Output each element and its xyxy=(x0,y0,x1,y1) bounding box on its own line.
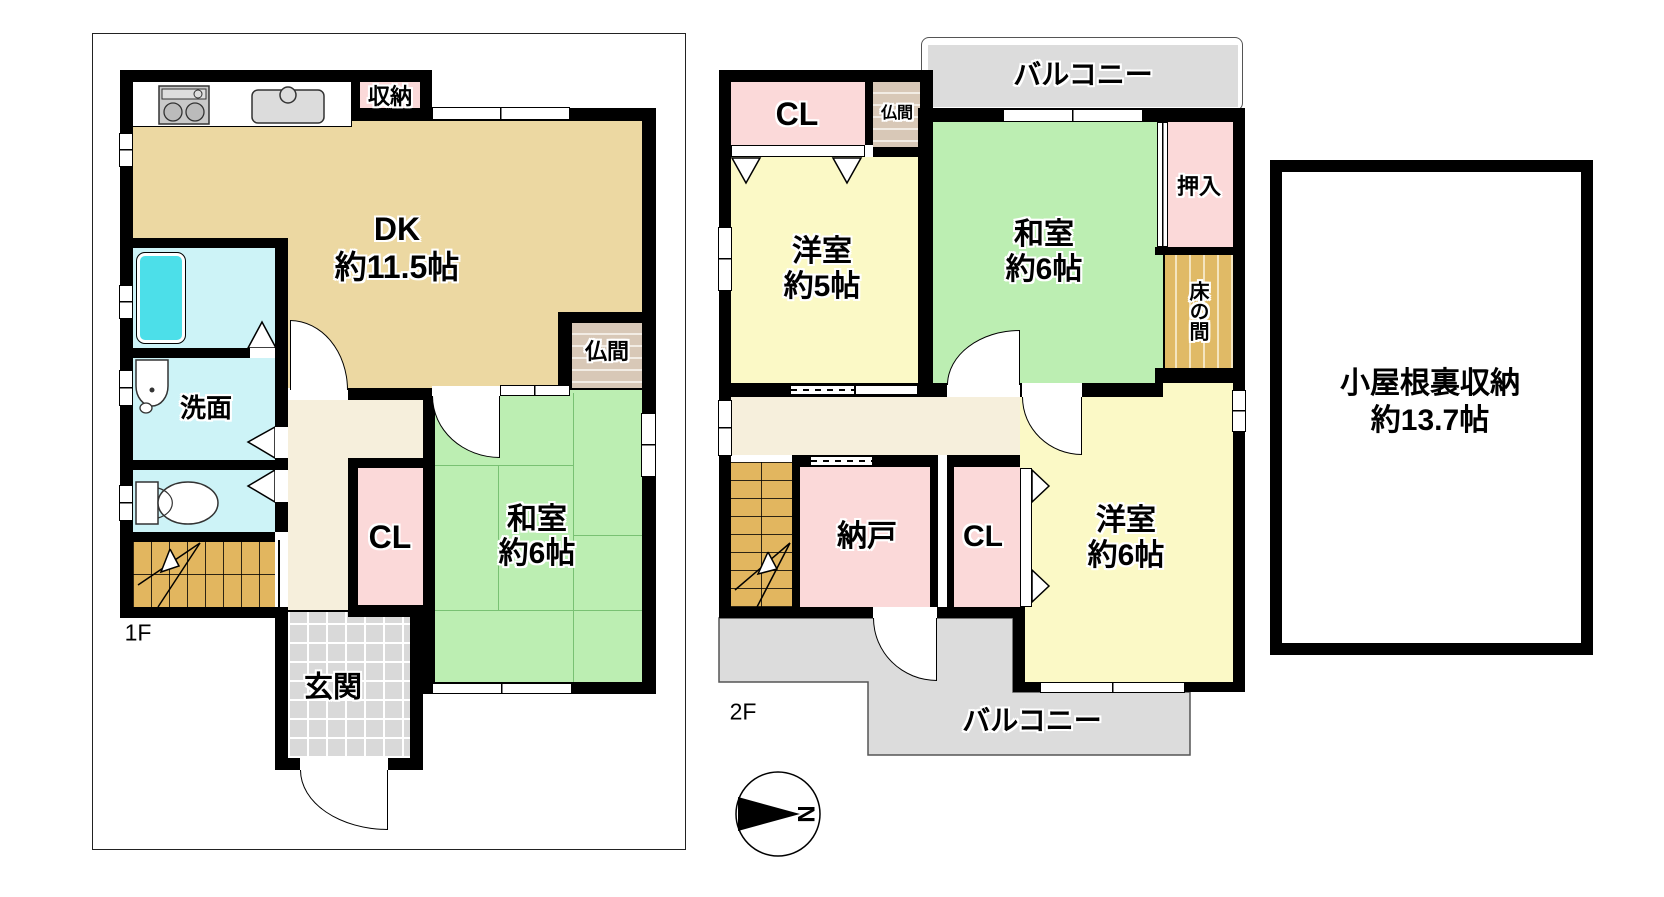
wall-segment xyxy=(1013,607,1025,692)
sliding-door xyxy=(790,385,855,395)
cl2f-top-triangle xyxy=(833,158,861,183)
balcony-window xyxy=(1003,109,1143,122)
label-tokonoma: 床の間 xyxy=(1187,281,1207,341)
wall-segment xyxy=(275,607,288,770)
sliding-door xyxy=(500,385,570,396)
wall-segment xyxy=(1155,247,1245,255)
wall-segment xyxy=(918,108,933,395)
toilet-icon xyxy=(134,478,222,528)
label-shuno: 収納 xyxy=(368,86,412,108)
genkan-door-gap xyxy=(300,758,388,770)
wall-segment xyxy=(120,460,275,470)
window xyxy=(432,683,572,694)
stairs-hall-line xyxy=(278,540,280,607)
wall-segment xyxy=(348,458,430,468)
bath-door-gap xyxy=(250,348,275,358)
label-senmen: 洗面 xyxy=(180,395,232,421)
window xyxy=(119,370,133,406)
wall-segment xyxy=(719,70,933,82)
wall-segment xyxy=(423,390,435,694)
wall-segment xyxy=(120,70,432,82)
label-dk-size: 約11.5帖 xyxy=(335,251,460,283)
label-washitsu-1f: 和室 xyxy=(507,505,567,535)
compass: N xyxy=(733,770,825,862)
floorplan-canvas: N DK 約11.5帖 和室 約6帖 洗面 CL 玄関 収納 仏間 1F 洋室 … xyxy=(0,0,1664,897)
label-washitsu-1f-size: 約6帖 xyxy=(499,539,576,569)
wall-segment xyxy=(865,82,873,145)
closet-front-2f xyxy=(731,145,865,157)
wall-segment xyxy=(558,312,572,390)
wall-segment xyxy=(719,70,731,618)
label-genkan: 玄関 xyxy=(304,674,362,703)
tokonoma-line xyxy=(1163,255,1165,368)
label-nando: 納戸 xyxy=(837,522,897,552)
oshiire-sliding xyxy=(1157,122,1168,247)
window xyxy=(432,107,570,120)
label-washitsu-2f: 和室 xyxy=(1014,220,1074,250)
window xyxy=(119,133,133,167)
stairs-2f-arrow xyxy=(735,543,790,607)
window xyxy=(718,227,732,291)
wall-segment xyxy=(1155,368,1245,383)
kitchen-sink-icon xyxy=(250,85,326,125)
wall-segment xyxy=(120,238,275,248)
label-floor-1f: 1F xyxy=(125,622,152,645)
toilet-door-gap xyxy=(275,470,288,502)
label-butsuma-2f: 仏間 xyxy=(881,106,913,122)
wall-segment xyxy=(1233,108,1245,383)
label-cl-2f-bottom: CL xyxy=(963,522,1003,552)
label-floor-2f: 2F xyxy=(730,701,757,724)
hall-genkan-line xyxy=(288,610,348,612)
window xyxy=(718,400,732,456)
label-oshiire: 押入 xyxy=(1177,176,1221,198)
stairs-1f-arrow xyxy=(138,543,200,607)
doorway xyxy=(855,385,918,395)
window xyxy=(641,413,656,477)
wall-segment xyxy=(352,108,432,121)
wall-segment xyxy=(792,455,800,607)
wall-segment xyxy=(947,455,1020,467)
label-yoshitsu5: 洋室 xyxy=(792,237,852,267)
label-balcony-bottom: バルコニー xyxy=(962,707,1101,735)
label-butsuma-1f: 仏間 xyxy=(585,341,629,363)
wall-segment xyxy=(642,108,656,694)
washitsu2f-door-gap xyxy=(947,383,1020,397)
wall-segment xyxy=(558,312,656,323)
washitsu1f-door-gap xyxy=(432,386,500,396)
senmen-door-triangle xyxy=(248,427,275,458)
label-yoshitsu6: 洋室 xyxy=(1096,506,1156,536)
window xyxy=(1040,682,1185,693)
compass-north-label: N xyxy=(792,805,819,822)
wall-segment xyxy=(120,532,133,618)
wall-segment xyxy=(120,532,275,542)
toilet-door-triangle xyxy=(248,470,275,502)
cl2f-bottom-triangle xyxy=(1032,570,1049,602)
yoshitsu6-door-gap xyxy=(1022,383,1082,397)
cl2f-top-triangle xyxy=(732,158,760,183)
label-cl-2f-top: CL xyxy=(776,98,819,130)
label-yoshitsu6-size: 約6帖 xyxy=(1088,541,1165,571)
window xyxy=(1232,390,1246,432)
wall-segment xyxy=(947,455,954,607)
label-cl-1f: CL xyxy=(369,521,412,553)
wall-segment xyxy=(410,607,423,770)
label-dk: DK xyxy=(374,213,420,245)
window xyxy=(119,285,133,319)
senmen-door-gap xyxy=(275,427,288,458)
label-yoshitsu5-size: 約5帖 xyxy=(784,272,861,302)
washbasin-icon xyxy=(134,358,174,414)
wall-segment xyxy=(120,607,288,618)
bath-door-triangle xyxy=(248,322,276,348)
window xyxy=(119,485,133,521)
balcony-door-gap xyxy=(873,607,937,618)
wall-segment xyxy=(348,388,432,400)
label-attic-size: 約13.7帖 xyxy=(1371,406,1489,436)
label-attic: 小屋根裏収納 xyxy=(1340,369,1520,399)
wall-segment xyxy=(719,607,1025,618)
stove-icon xyxy=(158,85,210,125)
wall-segment xyxy=(348,458,358,607)
label-washitsu-2f-size: 約6帖 xyxy=(1006,255,1083,285)
label-balcony-top: バルコニー xyxy=(1013,61,1152,89)
closet-front-yoshitsu6 xyxy=(1020,468,1032,607)
butsuma-floor-line xyxy=(572,388,642,390)
cl2f-bottom-triangle xyxy=(1032,470,1049,502)
nando-sliding xyxy=(810,456,873,466)
wall-segment xyxy=(930,455,938,607)
